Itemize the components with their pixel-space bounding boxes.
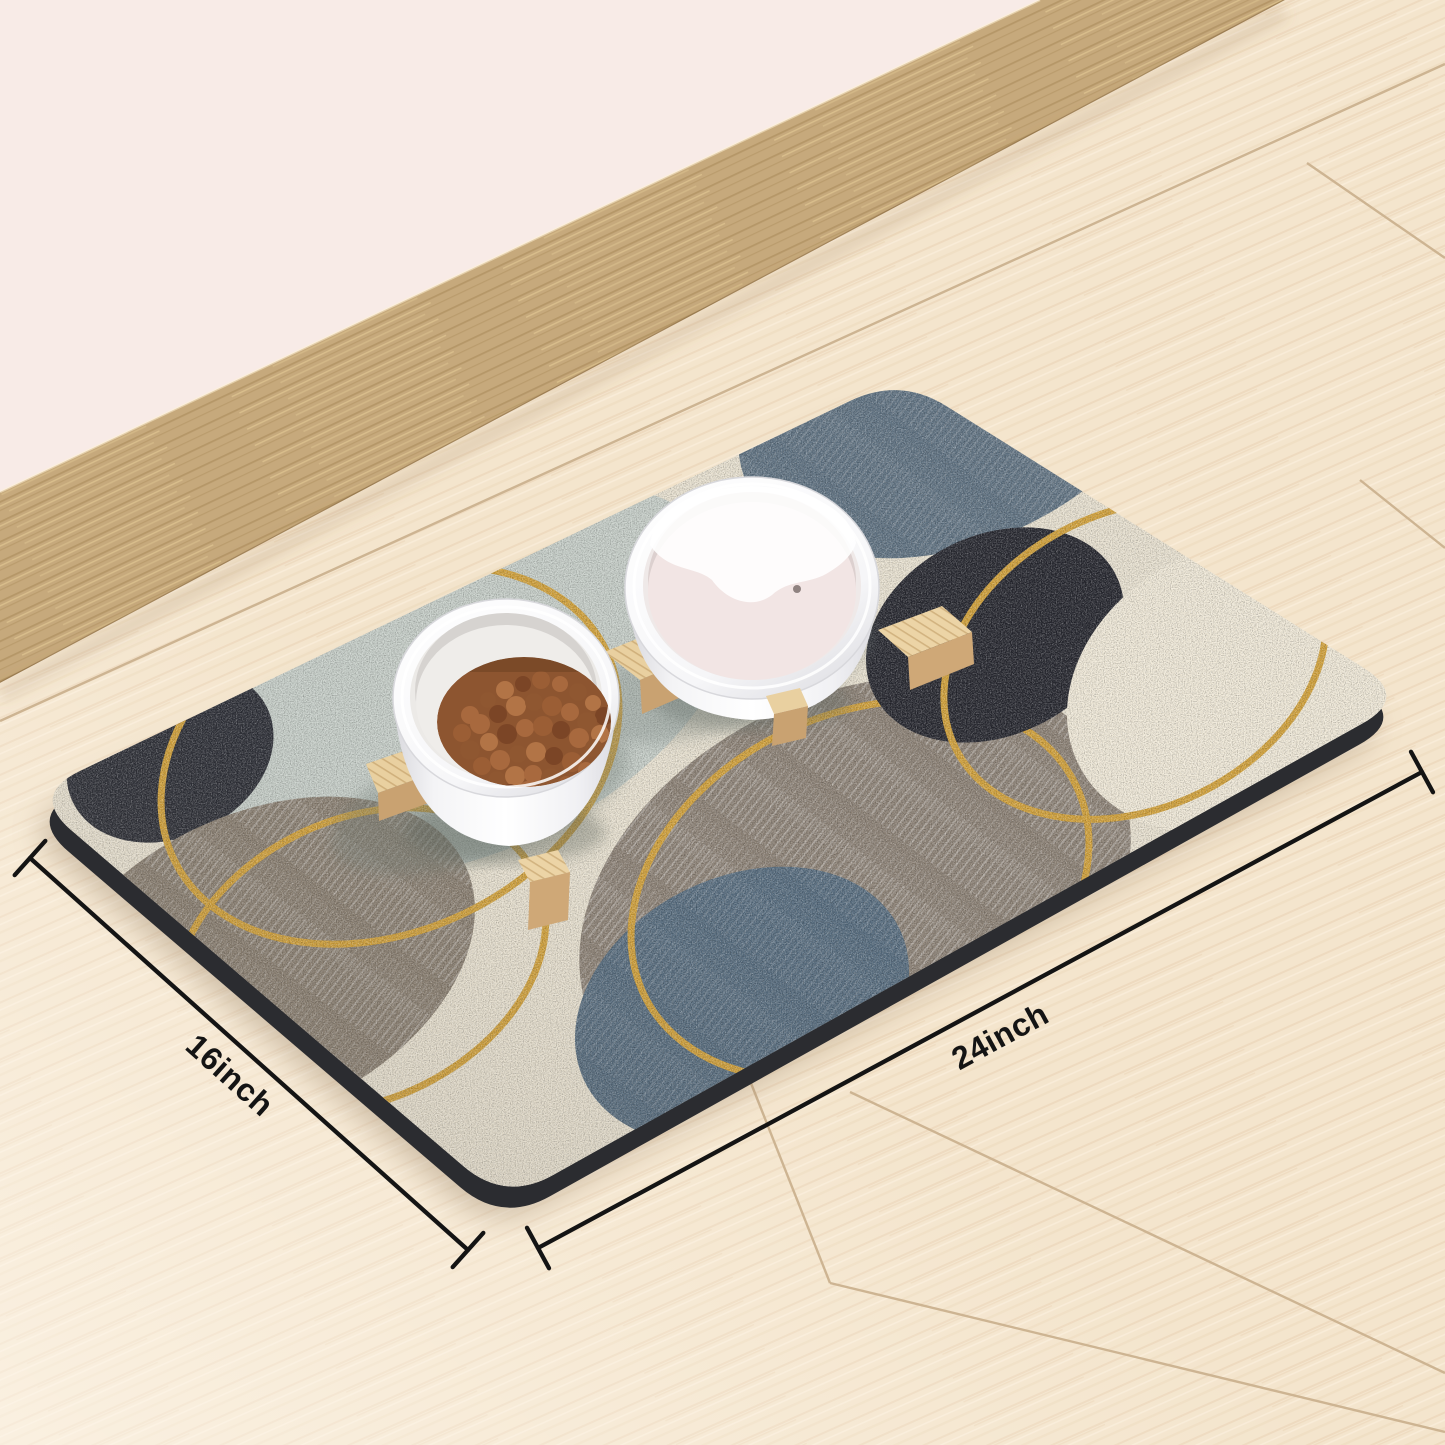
product-photo-pet-feeding-mat: 16inch 24inch — [0, 0, 1445, 1445]
scene: 16inch 24inch — [0, 0, 1445, 1445]
water-speck — [793, 585, 801, 593]
water-bowl — [625, 477, 879, 720]
